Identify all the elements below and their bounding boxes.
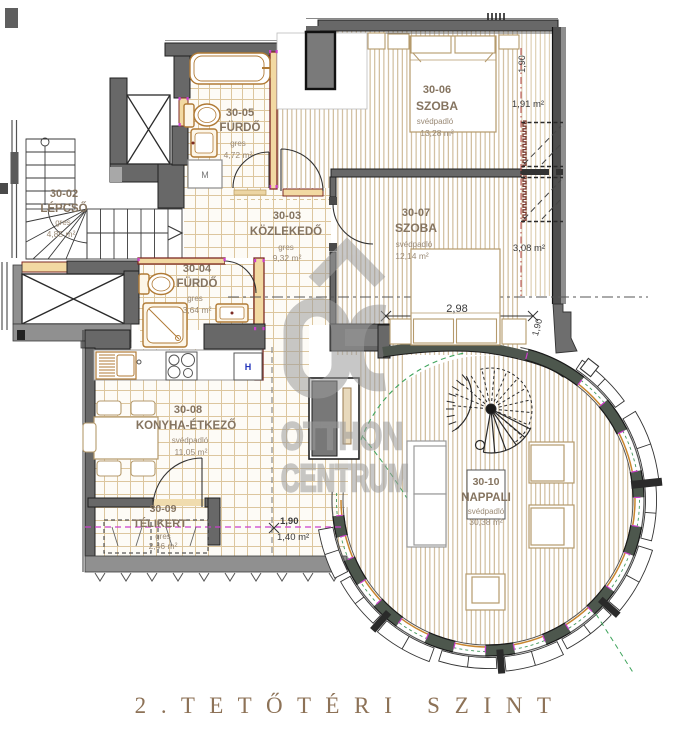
svg-text:H: H <box>245 362 252 372</box>
svg-text:gres: gres <box>155 532 171 541</box>
svg-text:svédpadló: svédpadló <box>396 240 433 249</box>
svg-text:3,64 m²: 3,64 m² <box>183 305 212 315</box>
svg-text:4,85 m²: 4,85 m² <box>47 229 76 239</box>
svg-text:13,28 m²: 13,28 m² <box>420 128 454 138</box>
svg-text:1,40 m²: 1,40 m² <box>277 532 309 543</box>
svg-text:30-02: 30-02 <box>50 188 78 200</box>
svg-text:30-04: 30-04 <box>183 263 212 275</box>
svg-text:30-10: 30-10 <box>473 476 500 488</box>
svg-text:SZOBA: SZOBA <box>416 99 458 113</box>
svg-text:12,14 m²: 12,14 m² <box>395 251 429 261</box>
svg-text:1,90: 1,90 <box>280 516 299 527</box>
svg-text:11,05 m²: 11,05 m² <box>175 447 208 457</box>
svg-text:30-07: 30-07 <box>402 207 430 219</box>
svg-text:1,90: 1,90 <box>517 55 527 73</box>
svg-text:KÖZLEKEDŐ: KÖZLEKEDŐ <box>250 225 322 238</box>
svg-text:gres: gres <box>55 218 71 227</box>
svg-text:30-06: 30-06 <box>423 84 451 96</box>
svg-text:30,38 m²: 30,38 m² <box>469 517 503 527</box>
svg-text:gres: gres <box>187 294 203 303</box>
svg-text:SZOBA: SZOBA <box>395 221 437 235</box>
svg-text:gres: gres <box>230 139 246 148</box>
svg-text:1,91 m²: 1,91 m² <box>512 99 544 110</box>
svg-text:3,08 m²: 3,08 m² <box>513 243 545 254</box>
svg-text:4,72 m²: 4,72 m² <box>224 150 253 160</box>
svg-text:svédpadló: svédpadló <box>417 117 454 126</box>
svg-text:KONYHA-ÉTKEZŐ: KONYHA-ÉTKEZŐ <box>136 419 236 432</box>
svg-text:NAPPALI: NAPPALI <box>461 492 511 504</box>
svg-text:LÉPCSŐ: LÉPCSŐ <box>40 202 87 215</box>
svg-text:svédpadló: svédpadló <box>172 436 209 445</box>
svg-text:OTTHON: OTTHON <box>281 416 403 458</box>
svg-text:M: M <box>201 170 209 180</box>
svg-text:2,98: 2,98 <box>446 303 467 315</box>
svg-text:gres: gres <box>278 243 294 252</box>
svg-text:9,32 m²: 9,32 m² <box>273 253 302 263</box>
svg-text:30-05: 30-05 <box>226 107 254 119</box>
svg-text:TÉLIKERT: TÉLIKERT <box>133 517 187 530</box>
svg-text:30-03: 30-03 <box>273 210 301 222</box>
svg-text:30-09: 30-09 <box>150 503 177 515</box>
svg-text:2,46 m²: 2,46 m² <box>149 541 178 551</box>
svg-text:FÜRDŐ: FÜRDŐ <box>220 121 261 134</box>
svg-text:FÜRDŐ: FÜRDŐ <box>177 277 218 290</box>
svg-text:30-08: 30-08 <box>174 404 202 416</box>
svg-text:svédpadló: svédpadló <box>468 507 505 516</box>
svg-text:2 . T E T Ő T É R I S Z I N: 2 . T E T Ő T É R I S Z I N T <box>135 692 556 718</box>
svg-text:CENTRUM: CENTRUM <box>281 458 409 500</box>
